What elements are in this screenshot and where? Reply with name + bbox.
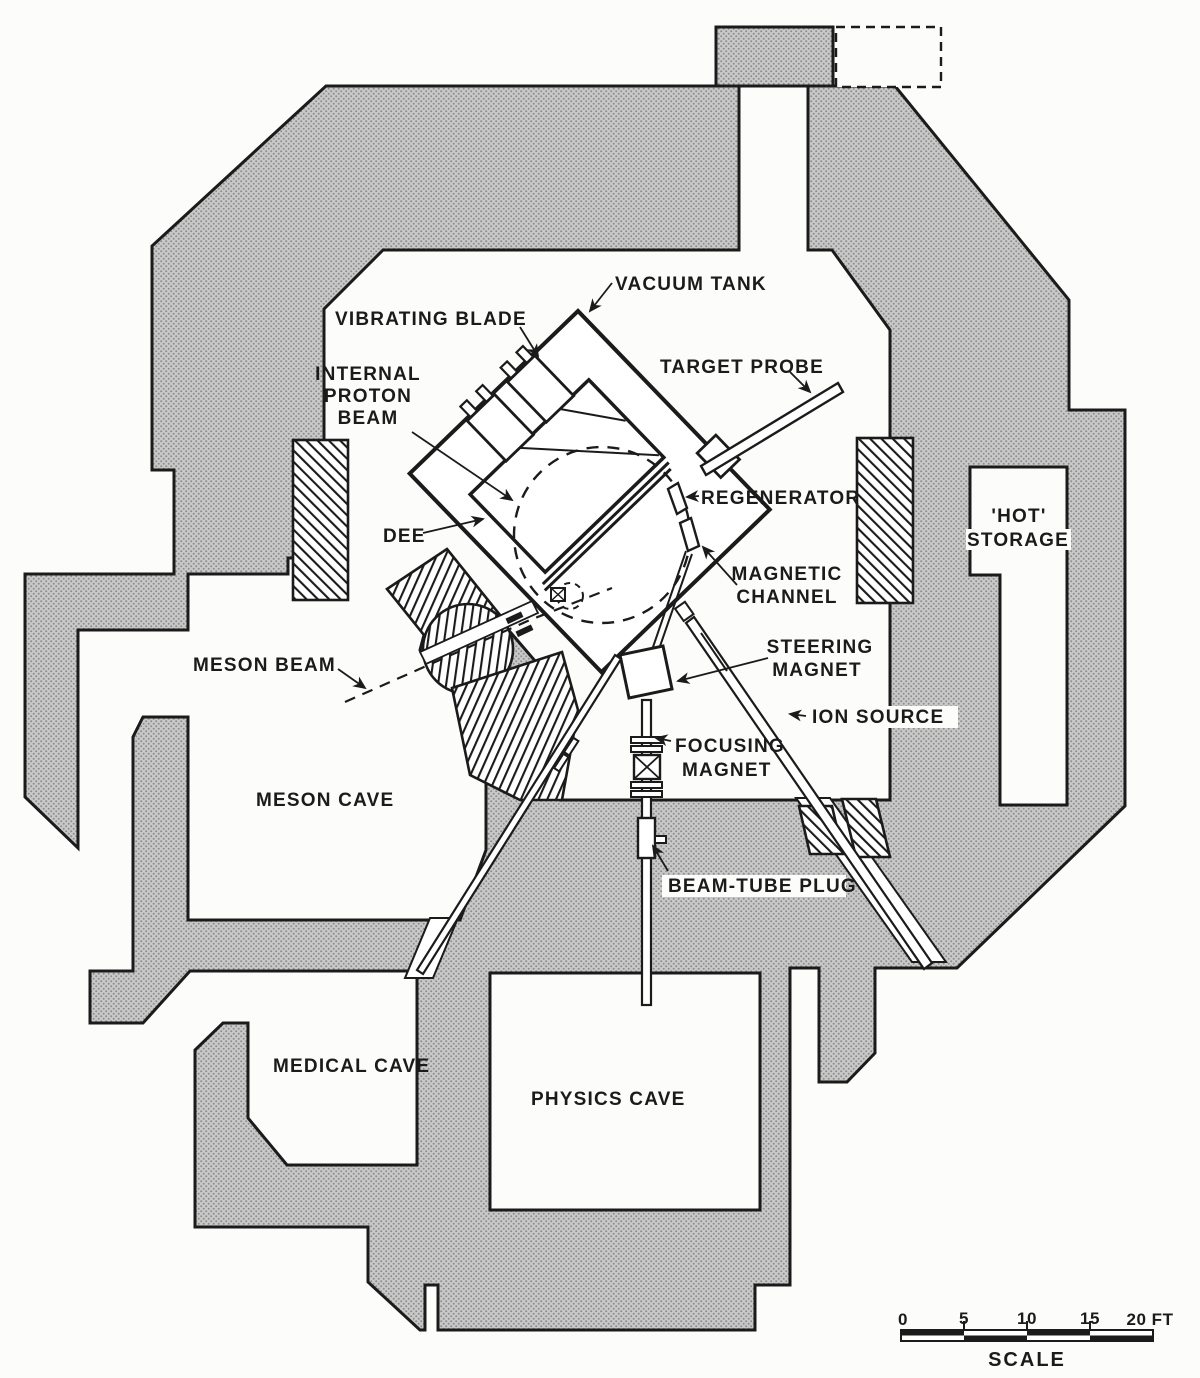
scale-caption: SCALE	[988, 1349, 1066, 1371]
dee-label: DEE	[383, 526, 426, 547]
beam-tube-plug-box	[638, 818, 655, 858]
meson-beam-label: MESON BEAM	[193, 655, 336, 676]
steering-magnet-label-1: STEERING	[767, 637, 874, 658]
focusing-magnet-label-1: FOCUSING	[675, 736, 785, 757]
scale-tick-15: 15	[1080, 1309, 1100, 1328]
regenerator-leader	[687, 496, 699, 497]
beam-tube-plug-tick	[655, 836, 666, 843]
hot-storage-label-1: 'HOT'	[991, 506, 1046, 527]
facility-floor-plan: VACUUM TANK VIBRATING BLADE INTERNAL PRO…	[0, 0, 1200, 1378]
medical-cave-label: MEDICAL CAVE	[273, 1056, 430, 1077]
cyclotron-floor-plan-page: VACUUM TANK VIBRATING BLADE INTERNAL PRO…	[0, 0, 1200, 1378]
steering-magnet-label-2: MAGNET	[772, 660, 862, 681]
focusing-magnet-label-2: MAGNET	[682, 760, 772, 781]
scale-tick-0: 0	[898, 1310, 908, 1329]
east-wall-shield-plug	[857, 438, 913, 603]
magnetic-channel-label-2: CHANNEL	[736, 587, 837, 608]
focusing-magnet-bar-2	[631, 746, 662, 752]
scale-tick-20ft: 20 FT	[1127, 1310, 1174, 1329]
roof-shield-block	[716, 27, 833, 86]
target-probe-label: TARGET PROBE	[660, 357, 824, 378]
vacuum-tank-label: VACUUM TANK	[615, 274, 767, 295]
scale-tick-10: 10	[1017, 1309, 1037, 1328]
beam-tube-plug-label: BEAM-TUBE PLUG	[668, 876, 857, 897]
roof-shield-block-parked-outline	[836, 27, 941, 87]
hot-storage-label-2: STORAGE	[967, 530, 1069, 551]
internal-proton-beam-label-2: PROTON	[324, 386, 412, 407]
focusing-magnet-bar-3	[631, 782, 662, 788]
magnetic-channel-label-1: MAGNETIC	[732, 564, 843, 585]
scale-tick-5: 5	[959, 1309, 969, 1328]
steering-magnet-box	[620, 646, 672, 698]
physics-cave-label: PHYSICS CAVE	[531, 1089, 685, 1110]
internal-proton-beam-label-1: INTERNAL	[315, 364, 421, 385]
ion-source-label: ION SOURCE	[812, 707, 944, 728]
regenerator-label: REGENERATOR	[701, 488, 860, 509]
focusing-magnet-bar-4	[631, 791, 662, 797]
vibrating-blade-label: VIBRATING BLADE	[335, 309, 527, 330]
meson-cave-label: MESON CAVE	[256, 790, 394, 811]
west-wall-shield-plug	[293, 440, 348, 600]
internal-proton-beam-label-3: BEAM	[338, 408, 399, 429]
